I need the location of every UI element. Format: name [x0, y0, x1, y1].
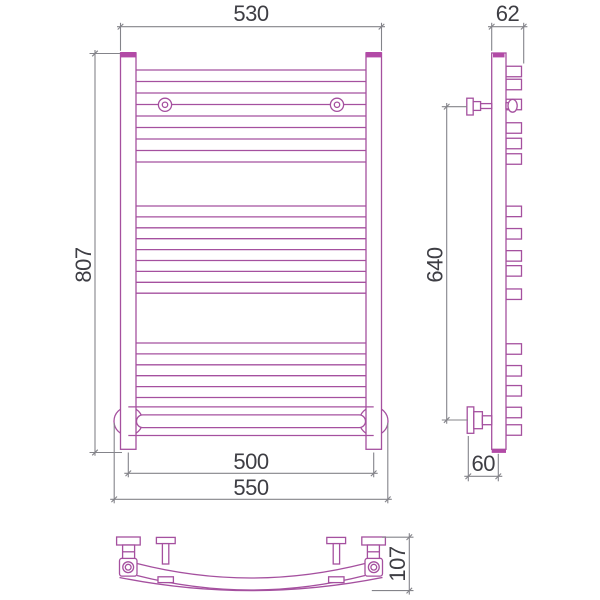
bottom-bracket-stem [482, 416, 491, 425]
drawing-canvas: 530 62 807 640 500 [0, 0, 600, 600]
plan-right-bracket-stem [333, 544, 339, 564]
front-right-bracket-disc [330, 98, 343, 111]
side-bar-stub [506, 289, 522, 300]
plan-left-bracket-flange [156, 537, 175, 543]
side-bar-stub [506, 206, 522, 217]
side-bar-stub [506, 229, 522, 240]
side-bar-stub [506, 138, 522, 149]
side-bar-stub [506, 66, 522, 77]
plan-right-bracket-foot [329, 577, 344, 583]
dim-label-62: 62 [496, 1, 520, 26]
front-view [114, 52, 388, 449]
dim-label-107: 107 [385, 546, 410, 581]
plan-left-connector [117, 537, 141, 558]
dim-label-60: 60 [472, 451, 496, 476]
side-bar-stub [506, 79, 522, 90]
side-bar-stub [506, 251, 522, 262]
plan-curve-top-edge [137, 564, 365, 579]
plan-left-valve-outer [123, 562, 134, 573]
collector-inner-tube [137, 415, 366, 428]
side-bar-stub [506, 154, 522, 165]
top-bracket-flange [467, 98, 473, 115]
dim-label-500: 500 [233, 449, 268, 474]
side-stubs [506, 66, 522, 435]
side-bar-stub [506, 344, 522, 355]
plan-right-connector [362, 537, 386, 558]
technical-drawing: 530 62 807 640 500 [0, 0, 600, 600]
dim-label-530: 530 [233, 1, 268, 26]
dimensions: 530 62 807 640 500 [71, 1, 527, 595]
front-right-rail-cap [366, 52, 382, 57]
side-bar-stub [506, 425, 522, 436]
top-bracket-nut [473, 102, 480, 111]
front-bars [136, 70, 366, 398]
plan-left-bracket-stem [162, 544, 168, 564]
dim-label-550: 550 [233, 475, 268, 500]
side-top-bracket [467, 98, 492, 115]
plan-right-bracket [327, 537, 346, 564]
plan-view [117, 537, 386, 591]
dim-front-top-width [117, 23, 385, 51]
front-left-bracket-disc [158, 98, 171, 111]
side-bottom-bracket [467, 407, 491, 433]
plan-left-flange [117, 537, 141, 545]
plan-right-valve-outer [368, 562, 379, 573]
front-left-rail [121, 53, 137, 449]
front-left-rail-cap [120, 52, 136, 57]
front-right-rail [366, 53, 382, 449]
plan-left-bracket [156, 537, 175, 564]
plan-right-flange [362, 537, 386, 545]
side-view [467, 53, 522, 453]
side-rail-top-cap [493, 53, 505, 58]
side-bar-stub [506, 366, 522, 377]
bottom-bracket-flange [467, 407, 474, 433]
side-rail [492, 53, 506, 449]
air-vent-cap [508, 99, 517, 112]
dim-label-640: 640 [423, 247, 448, 282]
top-bracket-stem [481, 104, 492, 109]
dim-label-807: 807 [71, 247, 96, 282]
side-bar-stub [506, 123, 522, 134]
side-bar-stub [506, 407, 522, 418]
plan-left-bracket-foot [158, 577, 173, 583]
bottom-bracket-collar [474, 412, 483, 429]
side-bar-stub [506, 266, 522, 277]
plan-right-bracket-flange [327, 537, 346, 543]
side-bar-stub [506, 386, 522, 397]
